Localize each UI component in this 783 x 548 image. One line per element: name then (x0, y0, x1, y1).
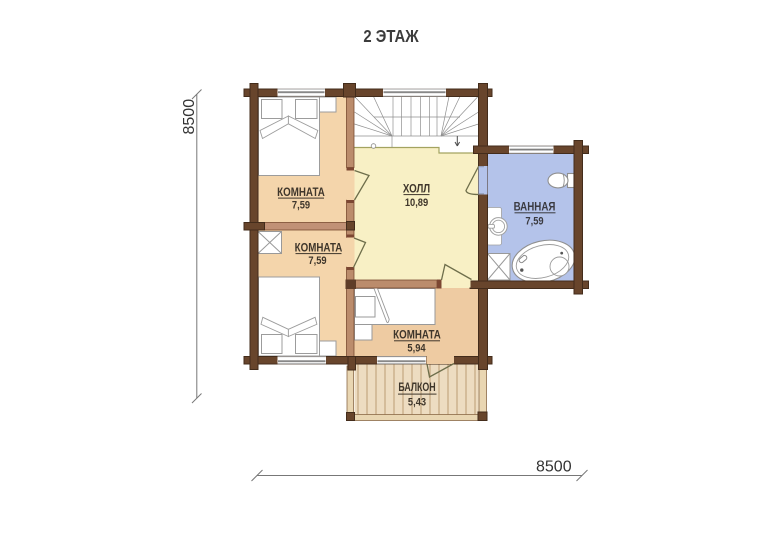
svg-text:ВАННАЯ: ВАННАЯ (514, 201, 556, 214)
svg-text:7,59: 7,59 (292, 200, 310, 212)
svg-text:ХОЛЛ: ХОЛЛ (403, 183, 430, 196)
svg-text:7,59: 7,59 (308, 255, 326, 267)
svg-text:7,59: 7,59 (525, 216, 543, 228)
svg-text:10,89: 10,89 (405, 197, 429, 209)
svg-text:КОМНАТА: КОМНАТА (393, 329, 441, 342)
svg-text:КОМНАТА: КОМНАТА (277, 186, 325, 199)
svg-text:КОМНАТА: КОМНАТА (295, 242, 343, 255)
svg-text:5,43: 5,43 (408, 397, 426, 409)
svg-text:2 ЭТАЖ: 2 ЭТАЖ (363, 27, 418, 47)
svg-text:8500: 8500 (536, 459, 572, 476)
svg-text:БАЛКОН: БАЛКОН (398, 382, 435, 394)
svg-text:5,94: 5,94 (407, 343, 425, 355)
svg-text:8500: 8500 (181, 99, 198, 135)
